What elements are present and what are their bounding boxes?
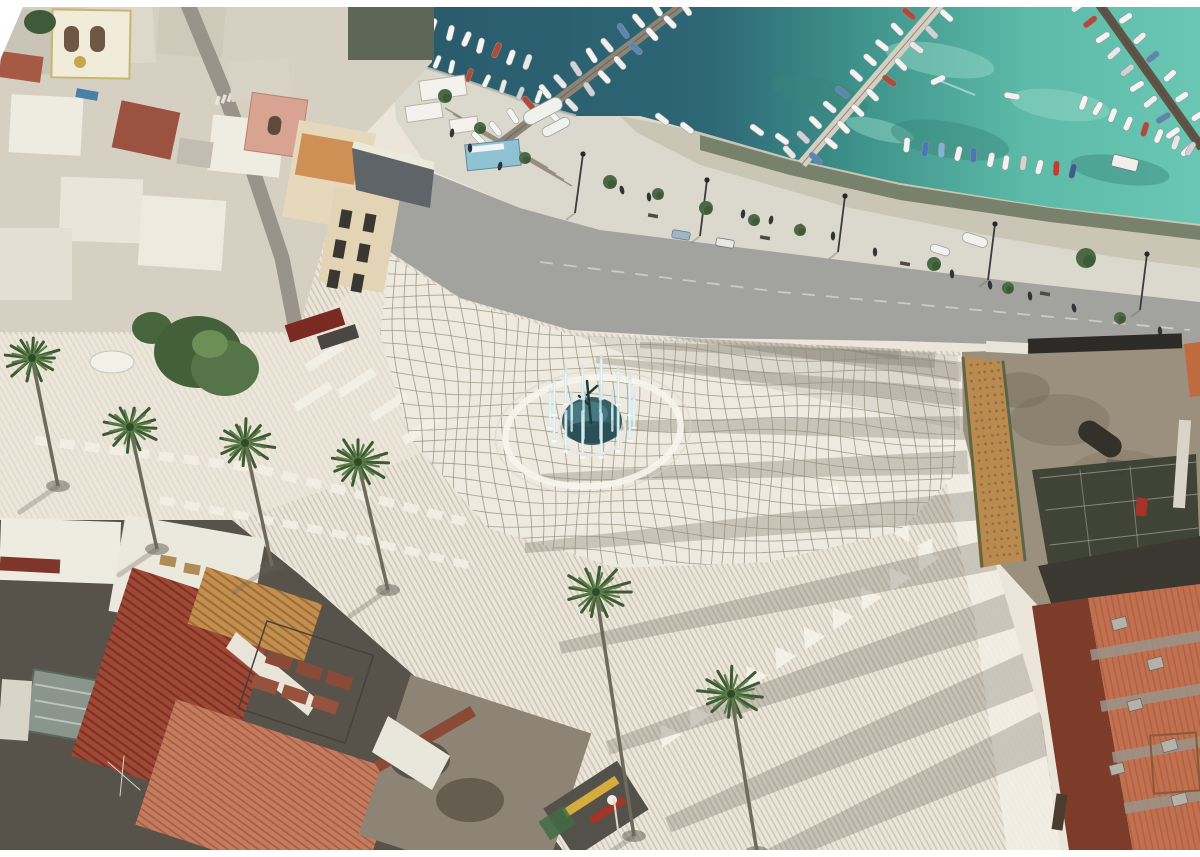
harbor-piazza-scene	[0, 0, 1200, 857]
seat-dot	[1015, 536, 1018, 539]
seat-dot	[1002, 409, 1005, 412]
bush-shade	[478, 126, 485, 133]
seat-dot	[1004, 441, 1007, 444]
seat-dot	[997, 369, 1000, 372]
seat-dot	[993, 530, 996, 533]
seat-dot	[981, 475, 984, 478]
seat-dot	[985, 459, 988, 462]
rect-shape	[986, 341, 1029, 354]
seat-dot	[1000, 457, 1003, 460]
seat-dot	[1008, 545, 1011, 548]
seat-dot	[1013, 528, 1016, 531]
rect-shape	[0, 850, 1200, 857]
palm-crown-center	[592, 588, 600, 596]
seat-dot	[986, 467, 989, 470]
palm-crown-center	[241, 439, 249, 447]
seat-dot	[983, 499, 986, 502]
seat-dot	[1007, 537, 1010, 540]
seat-dot	[1003, 553, 1006, 556]
rect-shape	[348, 0, 434, 60]
seat-dot	[991, 514, 994, 517]
seat-dot	[994, 474, 997, 477]
seat-dot	[987, 547, 990, 550]
jet-splash	[627, 413, 633, 416]
seat-dot	[980, 483, 983, 486]
jet-splash	[551, 440, 557, 443]
seat-dot	[976, 363, 979, 366]
seat-dot	[1008, 553, 1011, 556]
seat-dot	[1008, 480, 1011, 483]
ellipse-shape	[74, 56, 86, 68]
bush-shade	[932, 262, 940, 270]
seat-dot	[988, 418, 991, 421]
seat-dot	[989, 555, 992, 558]
lamp-head	[992, 221, 997, 226]
lamp-head	[580, 151, 585, 156]
seat-dot	[997, 514, 1000, 517]
bush-shade	[1118, 316, 1125, 323]
palm-crown-center	[28, 354, 36, 362]
bush-shade	[1083, 255, 1095, 267]
seat-dot	[1006, 529, 1009, 532]
seat-dot	[974, 403, 977, 406]
seat-dot	[1004, 433, 1007, 436]
seat-dot	[994, 401, 997, 404]
bush-shade	[523, 156, 530, 163]
seat-dot	[986, 531, 989, 534]
seat-dot	[995, 417, 998, 420]
bush-shade	[798, 228, 805, 235]
seat-dot	[980, 411, 983, 414]
seat-dot	[1003, 497, 1006, 500]
seat-dot	[1000, 538, 1003, 541]
seat-dot	[984, 515, 987, 518]
seat-dot	[979, 403, 982, 406]
seat-dot	[986, 386, 989, 389]
seat-dot	[1001, 473, 1004, 476]
seat-dot	[1010, 496, 1013, 499]
rect-shape	[90, 26, 105, 52]
lamp-head	[1144, 251, 1149, 256]
seat-dot	[973, 396, 976, 399]
seat-dot	[993, 458, 996, 461]
seat-dot	[991, 522, 994, 525]
seat-dot	[977, 435, 980, 438]
seat-dot	[982, 427, 985, 430]
seat-dot	[1001, 481, 1004, 484]
bush-shade	[608, 180, 616, 188]
bush-shade	[1006, 286, 1013, 293]
seat-dot	[1000, 465, 1003, 468]
seat-dot	[997, 361, 1000, 364]
jet-splash	[563, 403, 569, 406]
seat-dot	[986, 539, 989, 542]
seat-dot	[984, 443, 987, 446]
seat-dot	[1010, 488, 1013, 491]
jet-splash	[627, 440, 633, 443]
jet-splash	[598, 456, 604, 459]
seat-dot	[981, 419, 984, 422]
seat-dot	[1000, 546, 1003, 549]
rect-shape	[138, 195, 227, 271]
seat-dot	[1001, 393, 1004, 396]
seat-dot	[987, 402, 990, 405]
seat-dot	[999, 449, 1002, 452]
seat-dot	[994, 393, 997, 396]
blue-kiosk-truck	[465, 139, 521, 171]
ellipse-shape	[192, 330, 228, 358]
seat-dot	[999, 377, 1002, 380]
seat-dot	[997, 425, 1000, 428]
seat-dot	[994, 482, 997, 485]
seat-dot	[992, 386, 995, 389]
seat-dot	[996, 433, 999, 436]
boat	[970, 147, 977, 162]
seat-dot	[988, 482, 991, 485]
seat-dot	[984, 451, 987, 454]
seat-dot	[982, 435, 985, 438]
seat-dot	[995, 409, 998, 412]
rect-shape	[0, 0, 1200, 7]
seat-dot	[998, 522, 1001, 525]
seat-dot	[977, 443, 980, 446]
seat-dot	[991, 442, 994, 445]
seat-dot	[1014, 544, 1017, 547]
bush-shade	[656, 192, 663, 199]
seat-dot	[991, 434, 994, 437]
jet-splash	[547, 427, 553, 430]
seat-dot	[994, 538, 997, 541]
jet-splash	[563, 450, 569, 453]
seat-dot	[1001, 401, 1004, 404]
seat-dot	[989, 498, 992, 501]
ellipse-shape	[607, 795, 617, 805]
jet-splash	[580, 456, 586, 459]
seat-dot	[1002, 417, 1005, 420]
seat-dot	[992, 378, 995, 381]
bush-shade	[443, 94, 451, 102]
seat-dot	[988, 474, 991, 477]
boat	[938, 142, 945, 157]
jet-splash	[615, 450, 621, 453]
seat-dot	[972, 388, 975, 391]
boat	[1053, 161, 1060, 176]
rect-shape	[64, 26, 79, 52]
lamp-head	[842, 193, 847, 198]
seat-dot	[991, 370, 994, 373]
boat	[903, 137, 910, 152]
jet-splash	[615, 403, 621, 406]
seat-dot	[970, 364, 973, 367]
rect-shape	[0, 518, 121, 584]
seat-dot	[1011, 504, 1014, 507]
seat-dot	[1003, 425, 1006, 428]
jet-splash	[551, 413, 557, 416]
jet-splash	[631, 427, 637, 430]
ellipse-shape	[24, 10, 56, 34]
seat-dot	[979, 387, 982, 390]
rect-shape	[176, 138, 213, 168]
seat-dot	[996, 498, 999, 501]
seat-dot	[998, 506, 1001, 509]
lamp-head	[704, 177, 709, 182]
seat-dot	[982, 491, 985, 494]
seat-dot	[988, 410, 991, 413]
ellipse-shape	[90, 351, 134, 373]
seat-dot	[974, 412, 977, 415]
seat-dot	[975, 427, 978, 430]
seat-dot	[984, 507, 987, 510]
seat-dot	[1016, 552, 1019, 555]
seat-dot	[978, 379, 981, 382]
seat-dot	[970, 380, 973, 383]
basin-shade	[565, 421, 619, 443]
seat-dot	[978, 459, 981, 462]
seat-dot	[1000, 385, 1003, 388]
rect-shape	[0, 679, 32, 741]
seat-dot	[1003, 505, 1006, 508]
seat-dot	[1013, 520, 1016, 523]
seat-dot	[1006, 513, 1009, 516]
seat-dot	[996, 554, 999, 557]
seat-dot	[996, 490, 999, 493]
aerial-photo-canvas	[0, 0, 1200, 857]
seat-dot	[983, 370, 986, 373]
seat-dot	[991, 506, 994, 509]
rect-shape	[1135, 498, 1148, 517]
seat-dot	[986, 394, 989, 397]
bush-shade	[752, 218, 759, 225]
seat-dot	[1008, 472, 1011, 475]
seat-dot	[989, 362, 992, 365]
seat-dot	[1007, 465, 1010, 468]
seat-dot	[999, 441, 1002, 444]
bush-shade	[704, 206, 712, 214]
palm-crown-center	[126, 423, 134, 431]
seat-dot	[985, 523, 988, 526]
seat-dot	[984, 378, 987, 381]
seat-dot	[1005, 521, 1008, 524]
terracotta-roofs-bottom-right	[1032, 584, 1200, 857]
seat-dot	[1006, 457, 1009, 460]
rect-shape	[0, 228, 72, 300]
seat-dot	[978, 371, 981, 374]
seat-dot	[993, 546, 996, 549]
seat-dot	[984, 362, 987, 365]
seat-dot	[1011, 512, 1014, 515]
seat-dot	[975, 419, 978, 422]
seat-dot	[988, 426, 991, 429]
seat-dot	[980, 467, 983, 470]
seat-dot	[979, 395, 982, 398]
palm-crown-center	[727, 690, 735, 698]
ellipse-shape	[436, 778, 504, 822]
seat-dot	[969, 372, 972, 375]
seat-dot	[988, 490, 991, 493]
seat-dot	[991, 450, 994, 453]
seat-dot	[994, 466, 997, 469]
seat-dot	[1002, 489, 1005, 492]
seat-dot	[1007, 448, 1010, 451]
seat-dot	[1000, 529, 1003, 532]
palm-crown-center	[354, 458, 362, 466]
rect-shape	[9, 94, 84, 156]
seat-dot	[978, 451, 981, 454]
